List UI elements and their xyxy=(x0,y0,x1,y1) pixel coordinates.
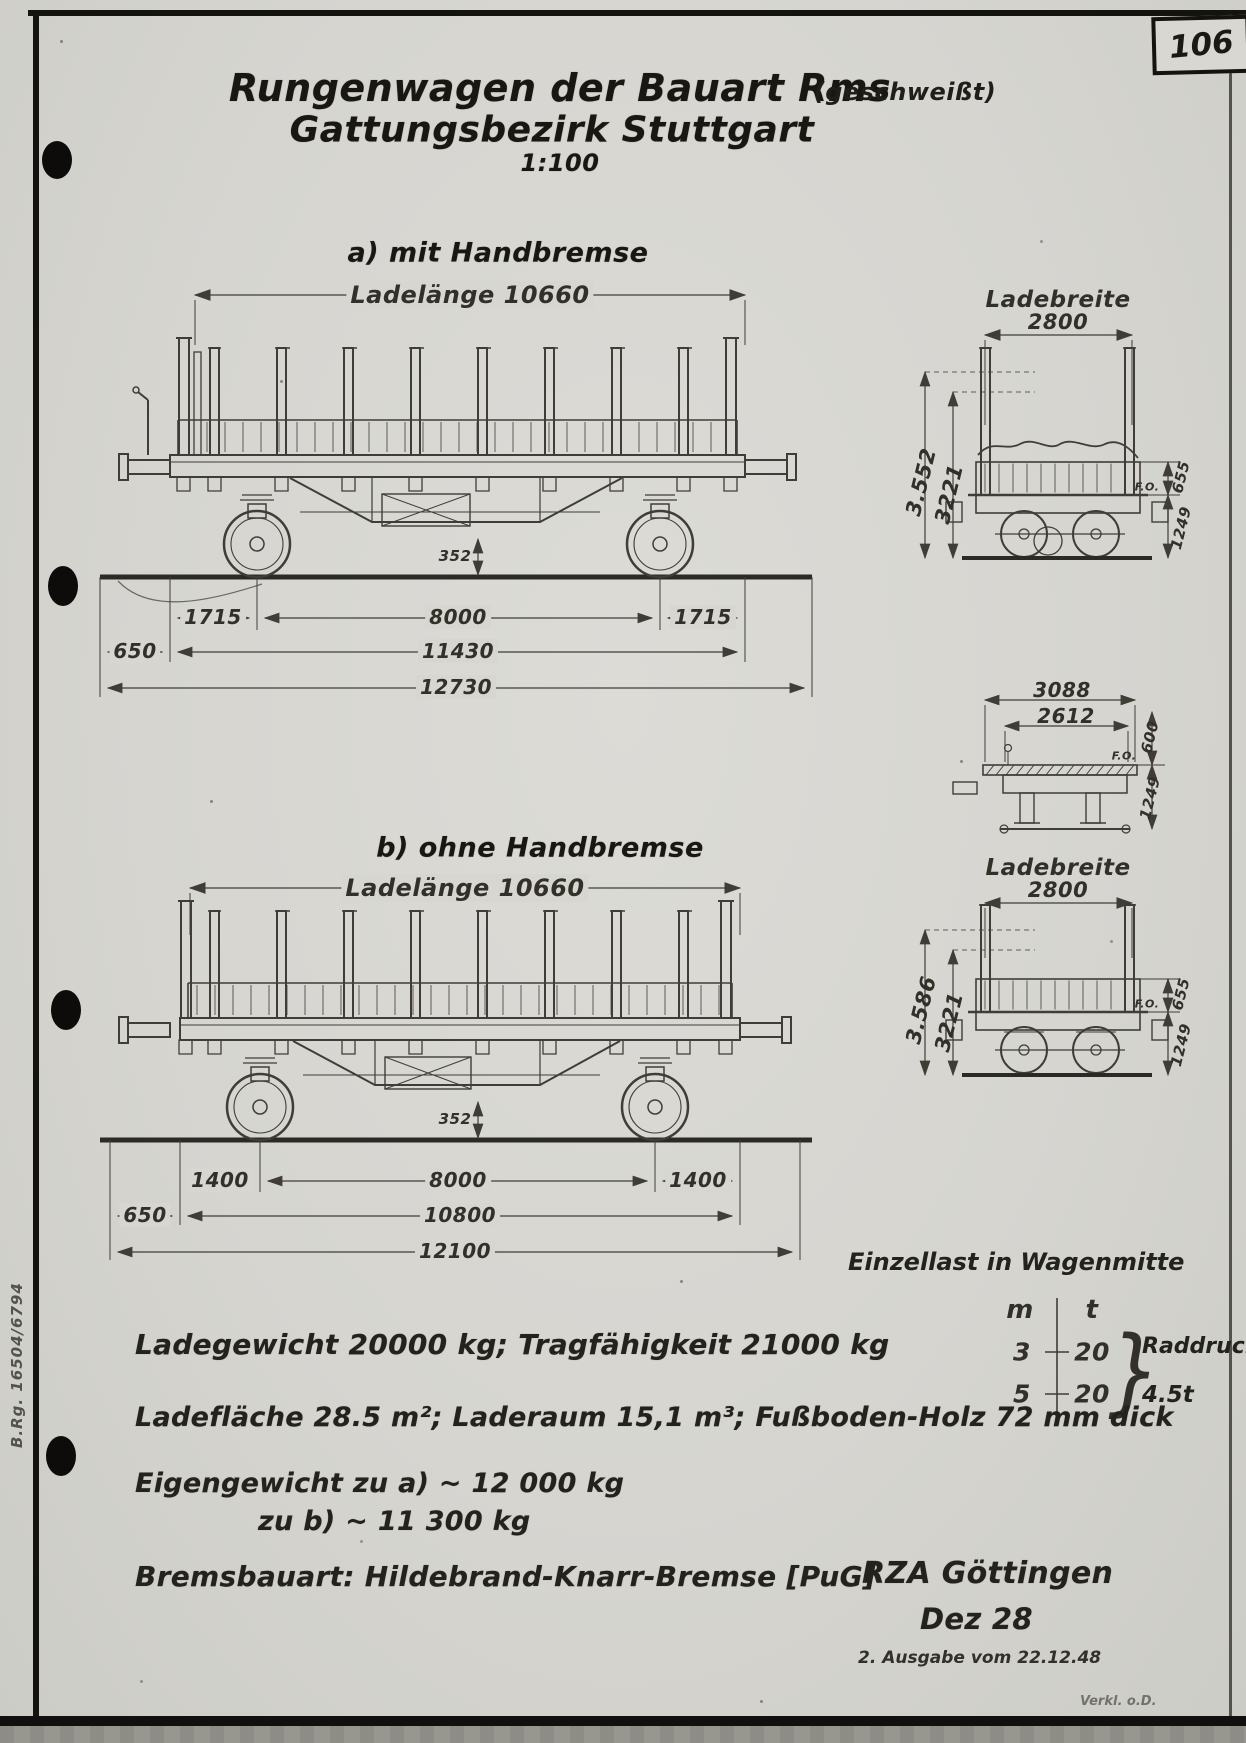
dim-2612: 2612 xyxy=(1037,704,1095,728)
load-table-note-raddruck: Raddruck xyxy=(1142,1334,1246,1359)
end-view-b-drawing xyxy=(925,903,1180,1075)
dim-352-b: 352 xyxy=(439,1110,472,1128)
label-fo-b: F.O. xyxy=(1135,998,1160,1011)
dim-8000-b: 8000 xyxy=(425,1168,491,1192)
spec-ladeflaeche: Ladefläche 28.5 m²; Laderaum 15,1 m³; Fu… xyxy=(135,1402,1174,1433)
imprint-edition: 2. Ausgabe vom 22.12.48 xyxy=(858,1648,1101,1668)
dim-10800: 10800 xyxy=(420,1203,500,1227)
spec-bremsbauart: Bremsbauart: Hildebrand-Knarr-Bremse [Pu… xyxy=(135,1560,876,1593)
side-view-a-drawing xyxy=(100,295,812,697)
load-table-t-1: 20 xyxy=(1074,1338,1110,1367)
footer-note: Verkl. o.D. xyxy=(1080,1694,1157,1709)
load-table-col-t: t xyxy=(1086,1295,1099,1325)
spec-ladegewicht: Ladegewicht 20000 kg; Tragfähigkeit 2100… xyxy=(135,1328,890,1361)
dim-1715-right: 1715 xyxy=(670,605,736,629)
dim-ladelaenge-a: Ladelänge 10660 xyxy=(346,281,593,309)
dim-352-a: 352 xyxy=(439,547,472,565)
spec-eigengewicht-b: zu b) ~ 11 300 kg xyxy=(258,1506,531,1537)
dim-1400-right: 1400 xyxy=(665,1168,731,1192)
dim-ladelaenge-b: Ladelänge 10660 xyxy=(341,874,588,902)
dim-12100: 12100 xyxy=(415,1239,495,1263)
dim-11430: 11430 xyxy=(418,639,498,663)
load-table-lines xyxy=(1045,1298,1069,1412)
dim-650-left-b: 650 xyxy=(119,1203,170,1227)
load-table-m-1: 3 xyxy=(1013,1338,1031,1367)
load-table-col-m: m xyxy=(1006,1295,1034,1325)
load-table-title: Einzellast in Wagenmitte xyxy=(848,1248,1184,1276)
dim-3088: 3088 xyxy=(1033,678,1091,702)
spec-eigengewicht-a: Eigengewicht zu a) ~ 12 000 kg xyxy=(135,1468,624,1499)
dim-8000-a: 8000 xyxy=(425,605,491,629)
dim-1715-left: 1715 xyxy=(180,605,246,629)
dim-12730: 12730 xyxy=(416,675,496,699)
dim-650-left-a: 650 xyxy=(109,639,160,663)
label-fo-mid: F.O. xyxy=(1112,750,1137,763)
dim-ladebreite-a: 2800 xyxy=(1028,310,1088,334)
dim-1400-left: 1400 xyxy=(187,1168,253,1192)
imprint-date: Dez 28 xyxy=(920,1602,1033,1636)
label-fo-a: F.O. xyxy=(1135,481,1160,494)
margin-note: B.Rg. 16504/6794 xyxy=(8,1282,26,1448)
scanned-drawing-page: 106 Rungenwagen der Bauart Rms (geschwei… xyxy=(0,0,1246,1743)
end-view-a-drawing xyxy=(925,335,1180,558)
dim-ladebreite-b: 2800 xyxy=(1028,878,1088,902)
imprint-office: RZA Göttingen xyxy=(862,1556,1113,1591)
